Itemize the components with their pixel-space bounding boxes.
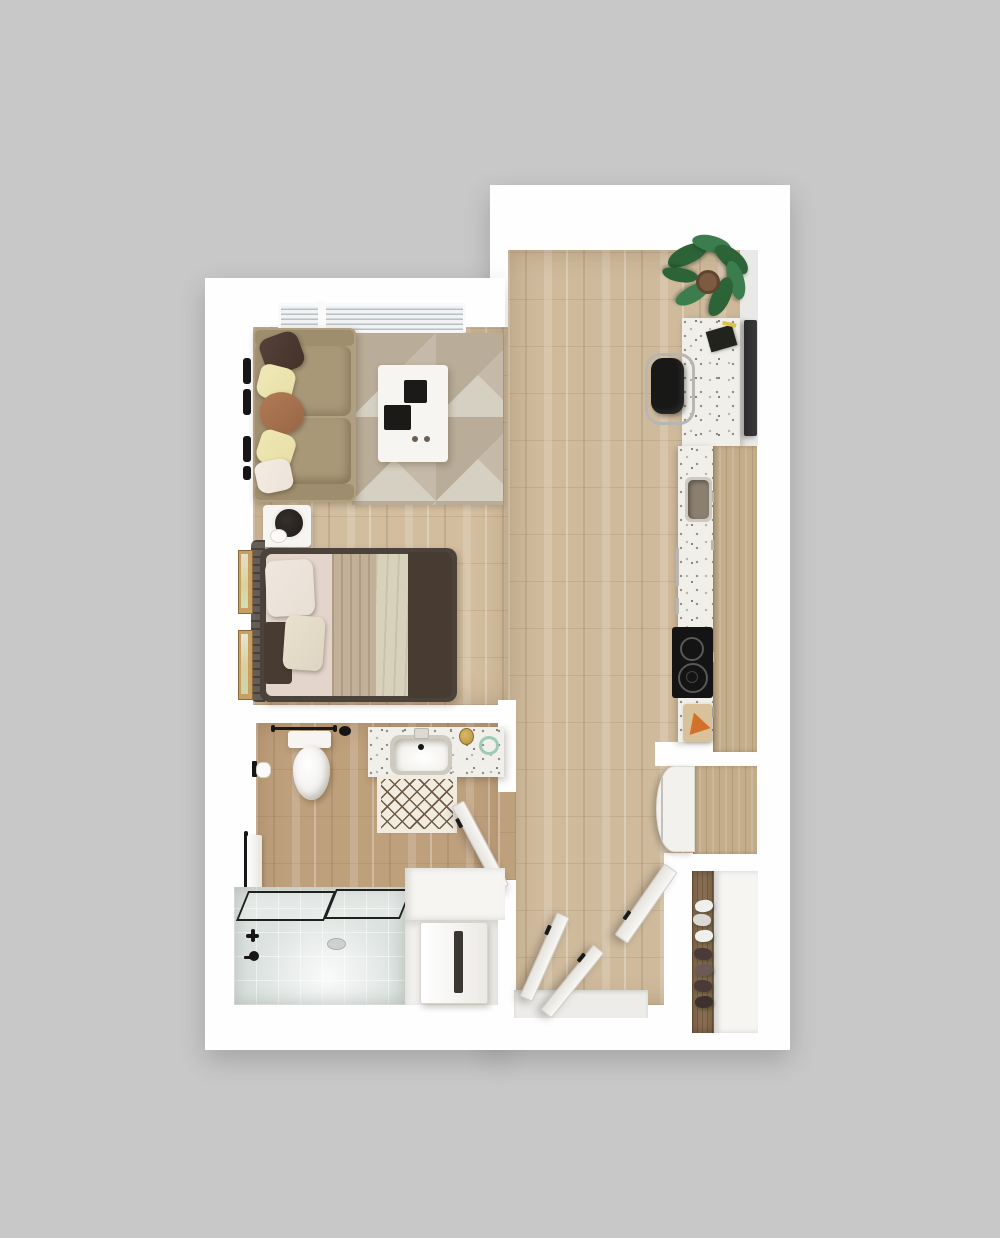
potted-plant: [660, 230, 752, 322]
shoe-7: [695, 995, 714, 1008]
wall-hook-2: [243, 389, 251, 415]
plant-pot: [696, 270, 720, 294]
cooktop-burner-1: [680, 637, 704, 661]
orange-slices: [683, 709, 710, 735]
shoe-5: [694, 963, 713, 977]
cabinet-handle-2: [711, 540, 714, 550]
towel-bar-end-right: [333, 725, 337, 732]
laundry-counter: [405, 868, 505, 920]
coffee-table: [378, 365, 448, 462]
vanity-faucet-spout: [418, 744, 424, 750]
wall-art-1: [241, 554, 248, 608]
washer-door-slot: [454, 931, 463, 993]
shoe-4: [693, 947, 712, 961]
bed-pillow-2: [282, 615, 326, 672]
drain-cover: [339, 726, 351, 736]
shoe-3: [695, 929, 714, 943]
glass-tumbler: [479, 736, 499, 755]
coffee-table-tray-2: [384, 405, 411, 430]
shower-glass-pane-2: [324, 889, 412, 919]
entry-closet-shelf-panel: [714, 871, 758, 1033]
fridge-handle: [661, 777, 663, 841]
soap-dispenser-gold: [459, 728, 474, 745]
vanity-sink: [390, 735, 452, 775]
tub-drain: [327, 938, 346, 950]
nightstand-cup: [270, 529, 287, 543]
towel-bar: [273, 727, 335, 730]
bed-duvet-cream: [376, 554, 410, 696]
shoe-1: [694, 899, 713, 913]
closet-shoes: [693, 900, 715, 1010]
kitchen-upper-cabinets: [713, 446, 757, 752]
kitchen-sink: [685, 477, 712, 522]
counter-handle-long: [676, 548, 679, 586]
hand-towel: [247, 835, 262, 889]
cooktop-burner-2-inner: [686, 671, 698, 683]
washer-dryer: [420, 922, 488, 1004]
wall-tv: [744, 320, 757, 436]
bath-mat: [381, 779, 453, 829]
kitchen-sink-basin: [688, 480, 709, 519]
bed-duvet-tan: [332, 554, 378, 696]
towel-bar-end-left: [271, 725, 275, 732]
bar-stool-seat: [651, 358, 684, 414]
shower-glass-pane-1: [236, 891, 336, 921]
coffee-table-knob-1: [412, 436, 418, 442]
coffee-table-tray-1: [404, 380, 427, 403]
cooktop: [672, 627, 713, 698]
plant-leaf-7: [661, 265, 699, 285]
wall-art-2: [241, 634, 248, 694]
wall-hook-3: [243, 436, 251, 462]
tub-faucet-stem: [251, 929, 255, 942]
bed: [260, 548, 457, 702]
shoe-6: [694, 979, 713, 993]
shoe-2: [692, 913, 711, 927]
bathroom-door-gap-floor: [498, 792, 516, 880]
bed-pillow-1: [265, 559, 316, 617]
fridge-cabinet-panel: [693, 766, 757, 854]
coffee-table-knob-2: [424, 436, 430, 442]
refrigerator: [656, 766, 695, 852]
bed-duvet-dark: [408, 552, 452, 698]
cutting-board: [683, 704, 712, 742]
tub-handle-cross: [244, 956, 252, 959]
wall-hook-1: [243, 358, 251, 384]
toilet-paper-roll: [256, 762, 271, 778]
vanity-faucet: [414, 728, 429, 739]
wall-art-frame-1: [238, 550, 253, 614]
counter-handle-short: [676, 598, 679, 614]
window-mullion: [318, 301, 326, 328]
wall-art-frame-2: [238, 630, 253, 700]
wall-hook-4: [243, 466, 251, 480]
